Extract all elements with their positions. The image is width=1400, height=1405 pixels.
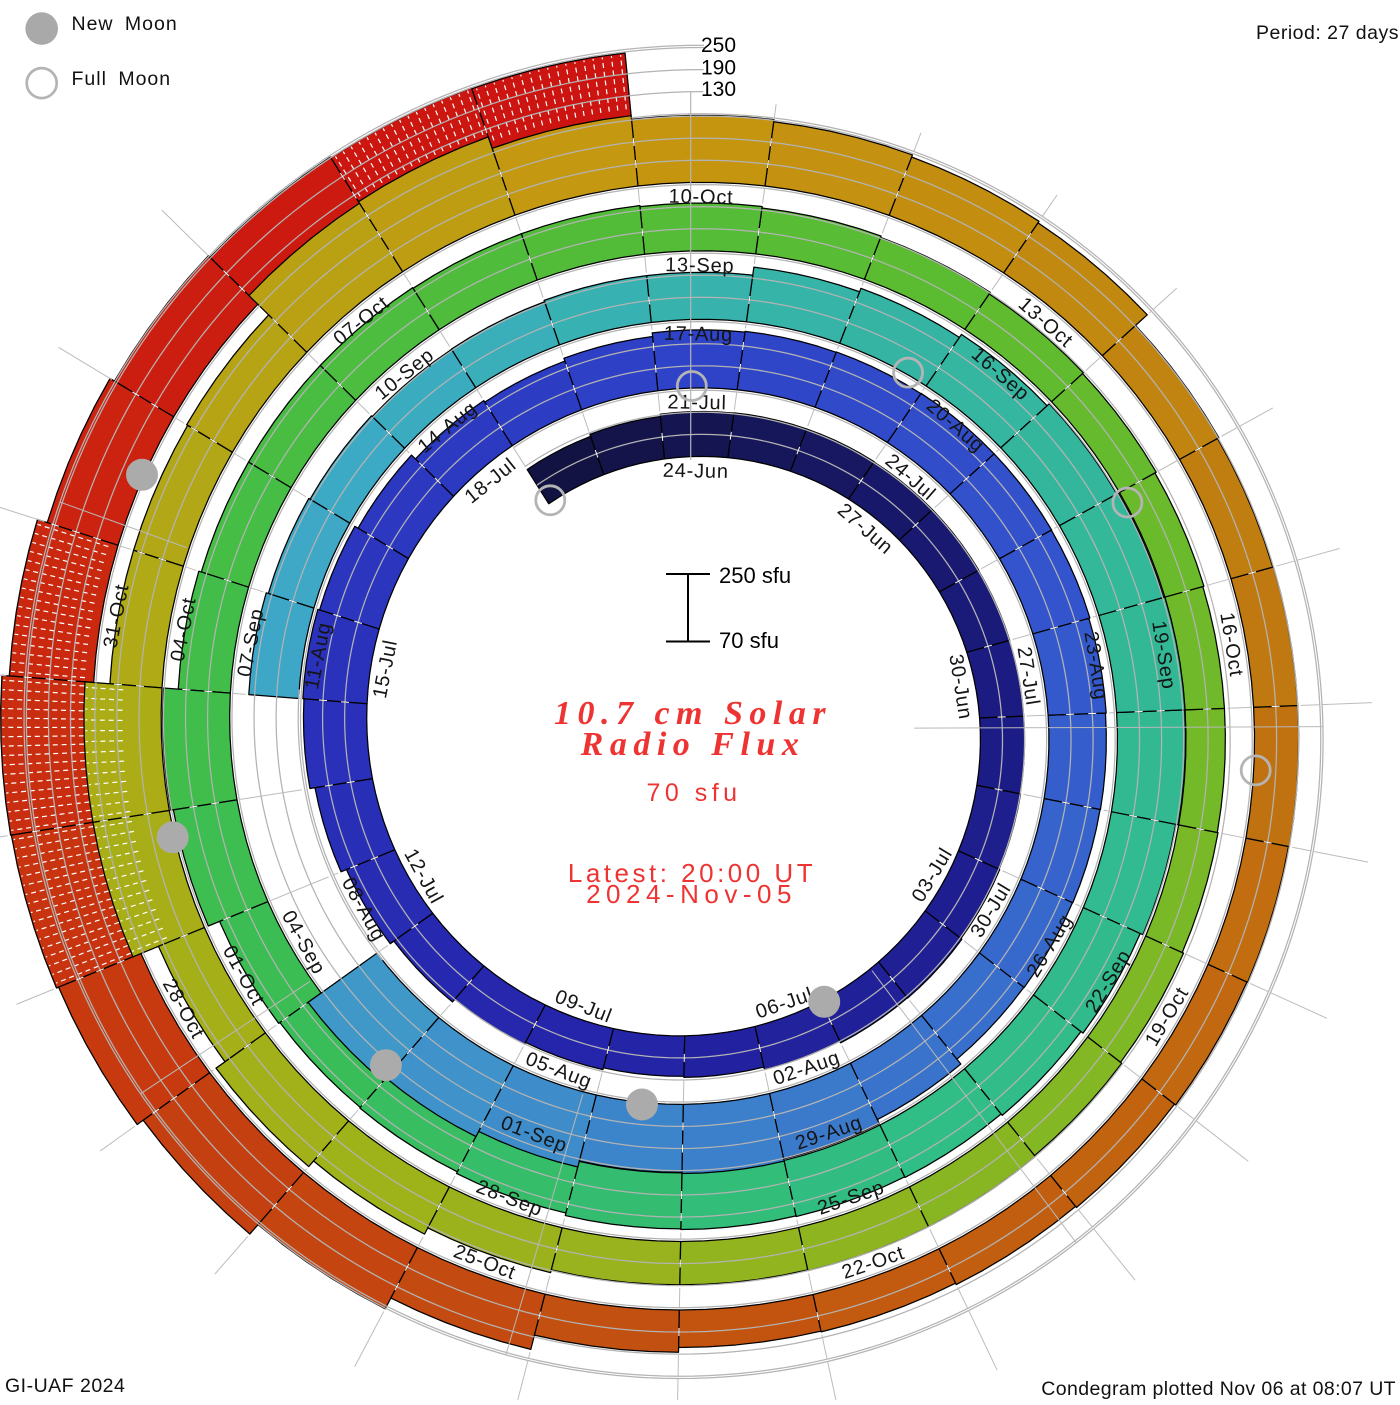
svg-text:Condegram plotted Nov 06 at 08: Condegram plotted Nov 06 at 08:07 UT [1041, 1378, 1396, 1400]
svg-text:250: 250 [701, 34, 736, 57]
svg-text:2024-Nov-05: 2024-Nov-05 [586, 879, 797, 909]
svg-text:Radio Flux: Radio Flux [580, 726, 806, 763]
svg-text:New Moon: New Moon [72, 13, 178, 35]
svg-text:Period: 27 days: Period: 27 days [1256, 22, 1399, 44]
svg-text:70 sfu: 70 sfu [646, 779, 741, 807]
svg-text:GI-UAF 2024: GI-UAF 2024 [5, 1375, 125, 1397]
svg-text:17-Aug: 17-Aug [664, 323, 734, 346]
svg-text:70 sfu: 70 sfu [719, 628, 779, 653]
svg-text:Full Moon: Full Moon [72, 68, 172, 90]
svg-text:24-Jun: 24-Jun [663, 460, 729, 483]
svg-text:21-Jul: 21-Jul [667, 391, 727, 414]
svg-text:10-Oct: 10-Oct [668, 186, 733, 209]
svg-text:250 sfu: 250 sfu [719, 563, 791, 588]
svg-text:13-Sep: 13-Sep [665, 254, 735, 277]
svg-text:190: 190 [701, 57, 736, 80]
svg-text:130: 130 [701, 78, 736, 101]
